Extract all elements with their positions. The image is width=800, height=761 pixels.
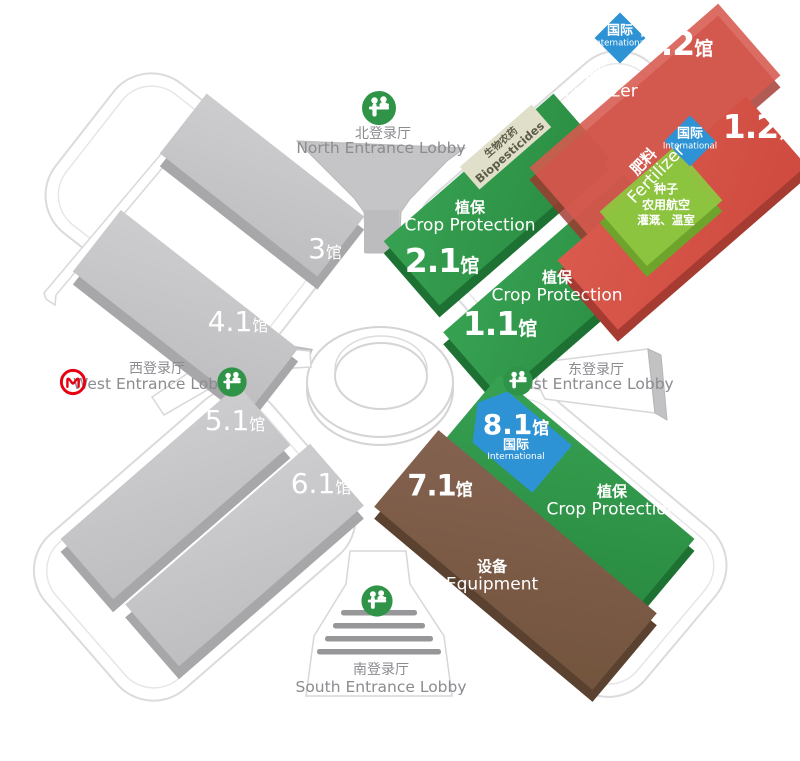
hall-4.1-label: 4.1馆 <box>208 306 269 338</box>
hall-8.1-badge-number: 8.1馆 <box>483 410 550 439</box>
hall-3-number: 3 <box>308 232 326 265</box>
fertilizer-en: Fertilizer <box>564 83 638 103</box>
hall-2.1-label: 2.1馆 <box>405 242 479 280</box>
crop-protection-zh: 植保 <box>546 484 677 501</box>
hall-2.2-label: 2.2馆 <box>639 25 713 63</box>
hall-6.1-number: 6.1 <box>291 467 336 500</box>
hall-2.1-suffix: 馆 <box>460 255 479 277</box>
hall-1.2-suffix: 馆 <box>778 121 797 143</box>
hall-4.1-suffix: 馆 <box>252 316 268 335</box>
seeds-block-label: 种子农用航空灌溉、温室 <box>637 182 695 228</box>
metro-logo-icon <box>58 367 89 398</box>
hall-8.1-category: 植保Crop Protection <box>546 484 677 521</box>
hall-1.1-label: 1.1馆 <box>463 305 537 343</box>
hall-2.1-category: 植保Crop Protection <box>404 200 535 237</box>
international-zh: 国际 <box>663 128 717 143</box>
international-zh: 国际 <box>593 25 647 40</box>
crop-protection-en: Crop Protection <box>404 217 535 237</box>
registration-desk-icon <box>503 366 534 397</box>
hall-1.2-label: 1.2馆 <box>723 108 797 146</box>
west-lobby-label-en: West Entrance Lobby <box>73 376 237 394</box>
crop-protection-en: Crop Protection <box>546 501 677 521</box>
hall-7.1-suffix: 馆 <box>456 480 473 500</box>
hall-2.1-number: 2.1 <box>405 241 460 280</box>
hall-7.1-label: 7.1馆 <box>407 469 472 502</box>
equipment-zh: 设备 <box>446 559 538 576</box>
hall-5.1-number: 5.1 <box>205 404 250 437</box>
south-lobby-label-zh: 南登录厅 <box>353 662 409 678</box>
registration-desk-icon <box>361 90 397 126</box>
registration-desk-icon <box>361 585 394 618</box>
hall-8.1-number: 8.1 <box>483 408 533 441</box>
hall-2.2-badge-label: 国际International <box>593 25 647 50</box>
crop-protection-en: Crop Protection <box>491 287 622 307</box>
hall-7.1-number: 7.1 <box>407 468 455 502</box>
hall-1.1-suffix: 馆 <box>518 318 537 340</box>
hall-1.1-number: 1.1 <box>463 304 518 343</box>
hall-7.1-category: 设备Equipment <box>446 559 538 596</box>
equipment-en: Equipment <box>446 576 538 596</box>
international-en: International <box>593 40 647 50</box>
crop-protection-zh: 植保 <box>404 200 535 217</box>
hall-1.1-category: 植保Crop Protection <box>491 270 622 307</box>
hall-2.2-suffix: 馆 <box>694 38 713 60</box>
crop-protection-zh: 植保 <box>491 270 622 287</box>
hall-8.1-suffix: 馆 <box>532 419 549 439</box>
hall-5.1-suffix: 馆 <box>249 415 265 434</box>
hall-3-suffix: 馆 <box>326 243 342 262</box>
exhibition-floor-map: 2.2馆 1.2馆 2.1馆 1.1馆 7.1馆 3馆 4.1馆 5.1馆 6.… <box>0 0 800 761</box>
south-lobby-label-en: South Entrance Lobby <box>295 679 466 697</box>
hall-6.1-suffix: 馆 <box>335 478 351 497</box>
hall-1.2-number: 1.2 <box>723 107 778 146</box>
seeds-line3: 灌溉、温室 <box>637 213 695 228</box>
international-en: International <box>663 143 717 153</box>
fertilizer-zh: 肥料 <box>564 66 638 83</box>
seeds-line2: 农用航空 <box>637 198 695 214</box>
hall-2.2-category: 肥料Fertilizer <box>564 66 638 103</box>
east-lobby-label-en: East Entrance Lobby <box>514 376 673 394</box>
hall-5.1-label: 5.1馆 <box>205 405 266 437</box>
registration-desk-icon <box>217 367 248 398</box>
seeds-line1: 种子 <box>637 182 695 198</box>
hall-3-label: 3馆 <box>308 233 342 265</box>
hall-8.1-badge-label: 8.1馆 国际 International <box>483 410 550 462</box>
hall-4.1-number: 4.1 <box>208 305 253 338</box>
international-en: International <box>483 453 550 462</box>
hall-6.1-label: 6.1馆 <box>291 468 352 500</box>
central-ring <box>307 327 453 445</box>
north-lobby-label-en: North Entrance Lobby <box>296 140 465 158</box>
hall-1.2-badge-label: 国际International <box>663 128 717 153</box>
international-zh: 国际 <box>483 439 550 453</box>
